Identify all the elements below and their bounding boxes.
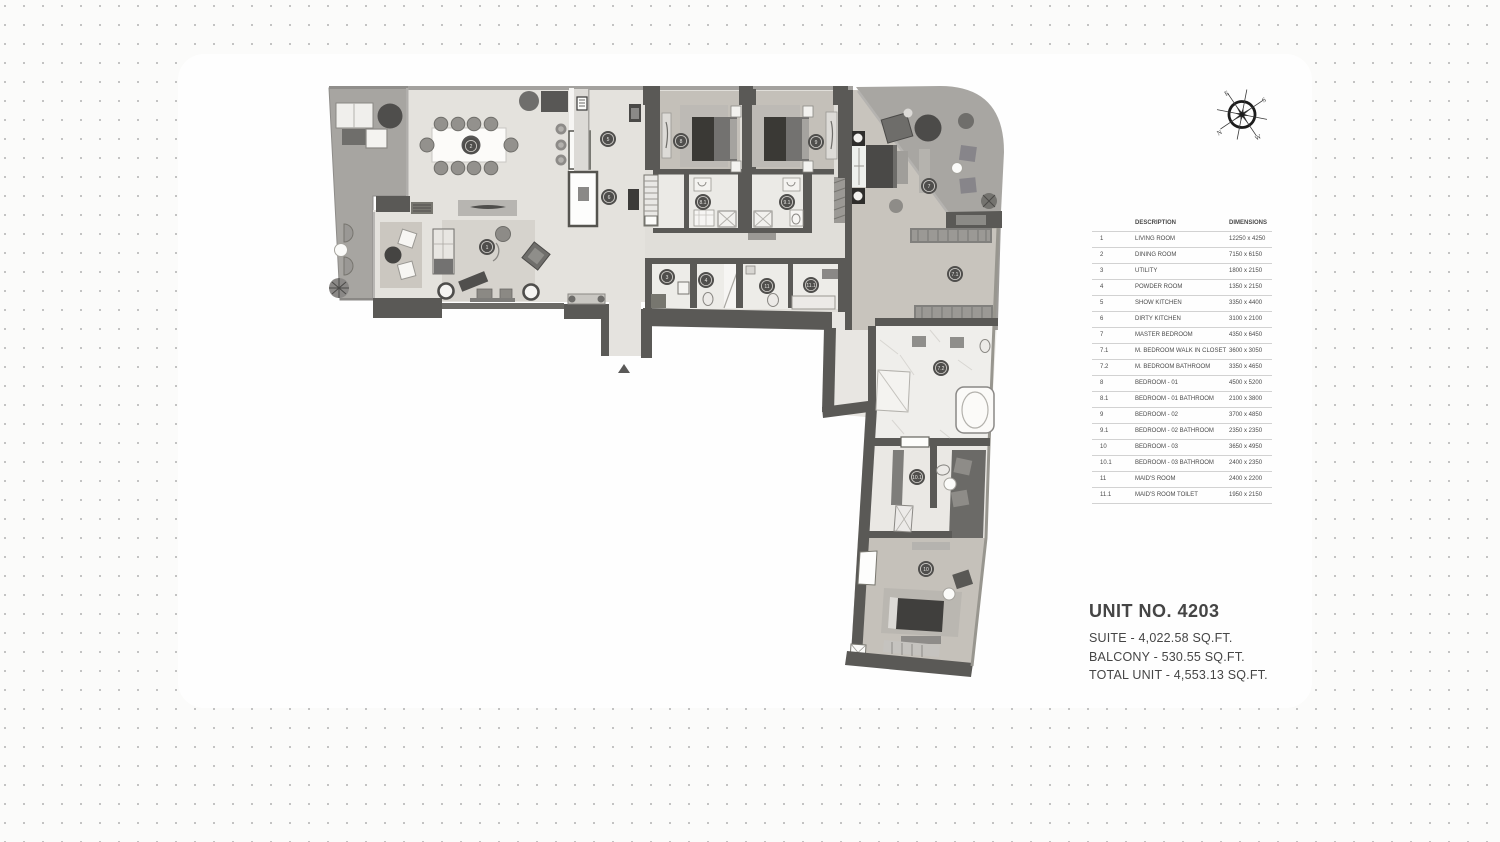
svg-text:7: 7 bbox=[928, 184, 931, 190]
svg-text:5: 5 bbox=[607, 137, 610, 143]
svg-text:4: 4 bbox=[705, 278, 708, 284]
svg-text:E: E bbox=[1223, 90, 1230, 98]
svg-text:11: 11 bbox=[764, 284, 769, 290]
svg-text:9.1: 9.1 bbox=[784, 200, 791, 206]
svg-text:3: 3 bbox=[666, 275, 669, 281]
svg-text:1: 1 bbox=[486, 245, 489, 251]
svg-text:9: 9 bbox=[815, 140, 818, 146]
svg-text:S: S bbox=[1261, 96, 1268, 104]
svg-text:8: 8 bbox=[680, 139, 683, 145]
svg-text:7.2: 7.2 bbox=[938, 366, 945, 372]
svg-text:10: 10 bbox=[923, 567, 929, 573]
svg-text:N: N bbox=[1216, 129, 1224, 138]
svg-text:8.1: 8.1 bbox=[700, 200, 707, 206]
svg-text:W: W bbox=[1254, 133, 1263, 142]
svg-text:10.1: 10.1 bbox=[912, 475, 922, 481]
svg-text:11.1: 11.1 bbox=[806, 283, 816, 289]
svg-text:7.1: 7.1 bbox=[952, 272, 959, 278]
svg-text:2: 2 bbox=[470, 144, 473, 150]
svg-text:6: 6 bbox=[608, 195, 611, 201]
